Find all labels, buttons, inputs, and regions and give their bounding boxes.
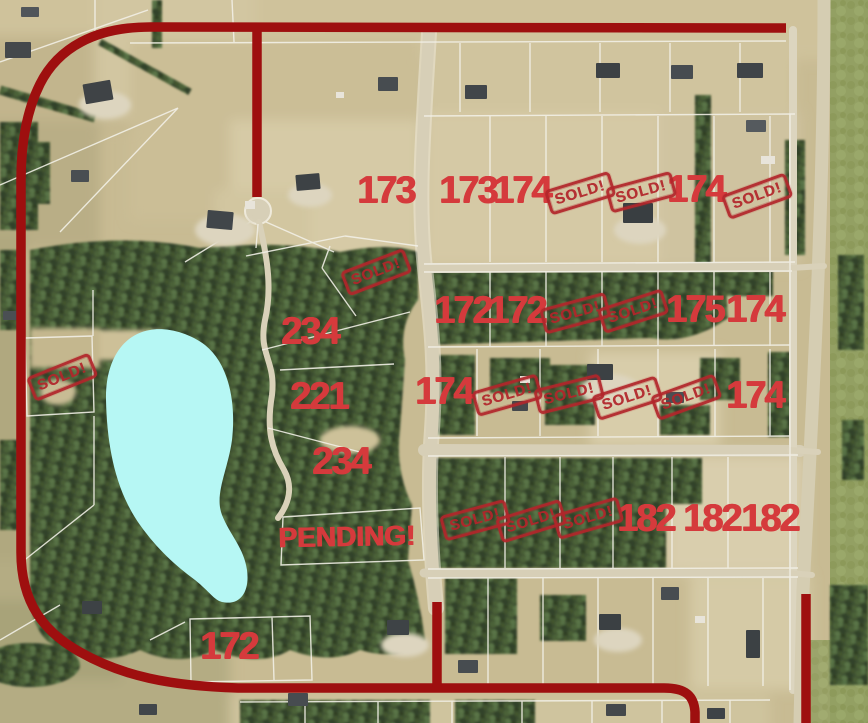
lot-labels-overlay: 1731731741741721721751741741741821821822… (0, 0, 868, 723)
sold-stamp: SOLD! (721, 172, 793, 219)
lot-price-label: 172 (434, 290, 491, 333)
sold-stamp: SOLD! (597, 288, 669, 333)
lot-price-label: 182 (683, 498, 740, 541)
lot-price-label: 174 (726, 375, 783, 418)
lot-price-label: 234 (312, 441, 369, 484)
lot-price-label: 172 (488, 290, 545, 333)
lot-price-label: 221 (290, 376, 347, 419)
sold-stamp: SOLD! (605, 171, 677, 213)
lot-price-label: 174 (415, 371, 472, 414)
lot-price-label: 174 (726, 289, 783, 332)
lot-price-label: 175 (666, 289, 723, 332)
lot-price-label: 173 (439, 170, 496, 213)
lot-price-label: 173 (357, 170, 414, 213)
lot-price-label: 174 (493, 170, 550, 213)
sold-stamp: SOLD! (26, 353, 98, 402)
aerial-map: 1731731741741721721751741741741821821822… (0, 0, 868, 723)
lot-price-label: 172 (200, 626, 257, 669)
sold-stamp: SOLD! (340, 248, 412, 296)
sold-stamp: SOLD! (552, 496, 624, 539)
sold-stamp: SOLD! (650, 373, 722, 420)
pending-label: PENDING! (278, 520, 415, 554)
lot-price-label: 174 (667, 169, 724, 212)
sold-stamp: SOLD! (471, 373, 543, 416)
lot-price-label: 234 (281, 311, 338, 354)
lot-price-label: 182 (741, 498, 798, 541)
lot-price-label: 182 (617, 498, 674, 541)
